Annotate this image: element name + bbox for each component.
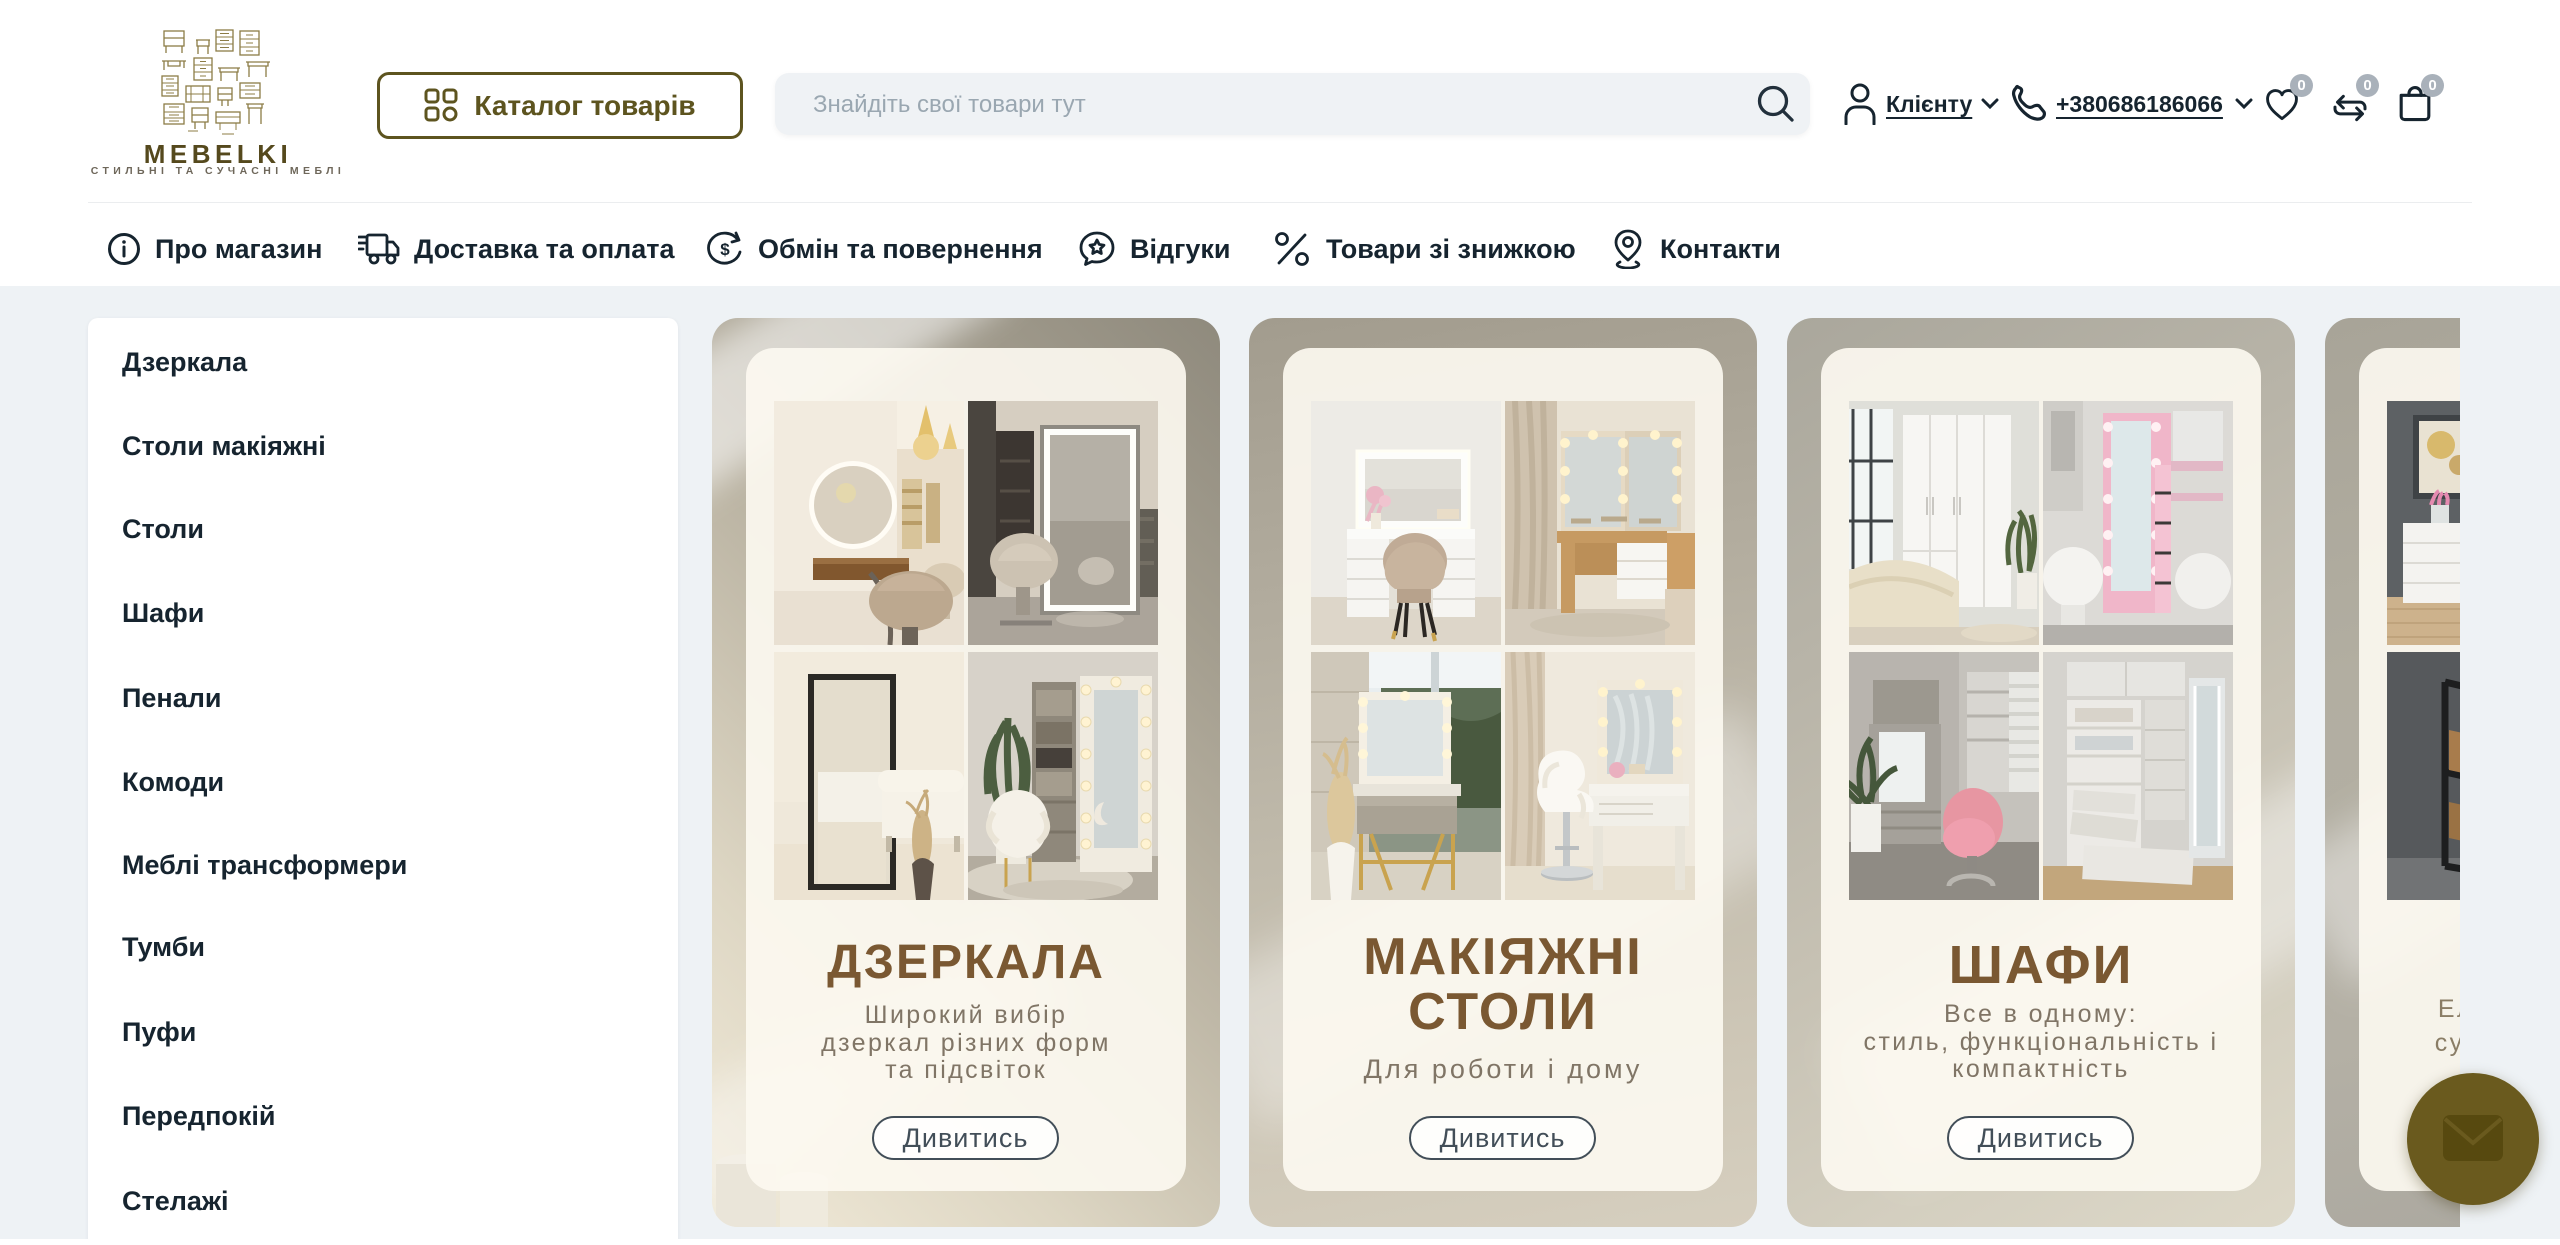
svg-text:$: $ [720,240,730,259]
